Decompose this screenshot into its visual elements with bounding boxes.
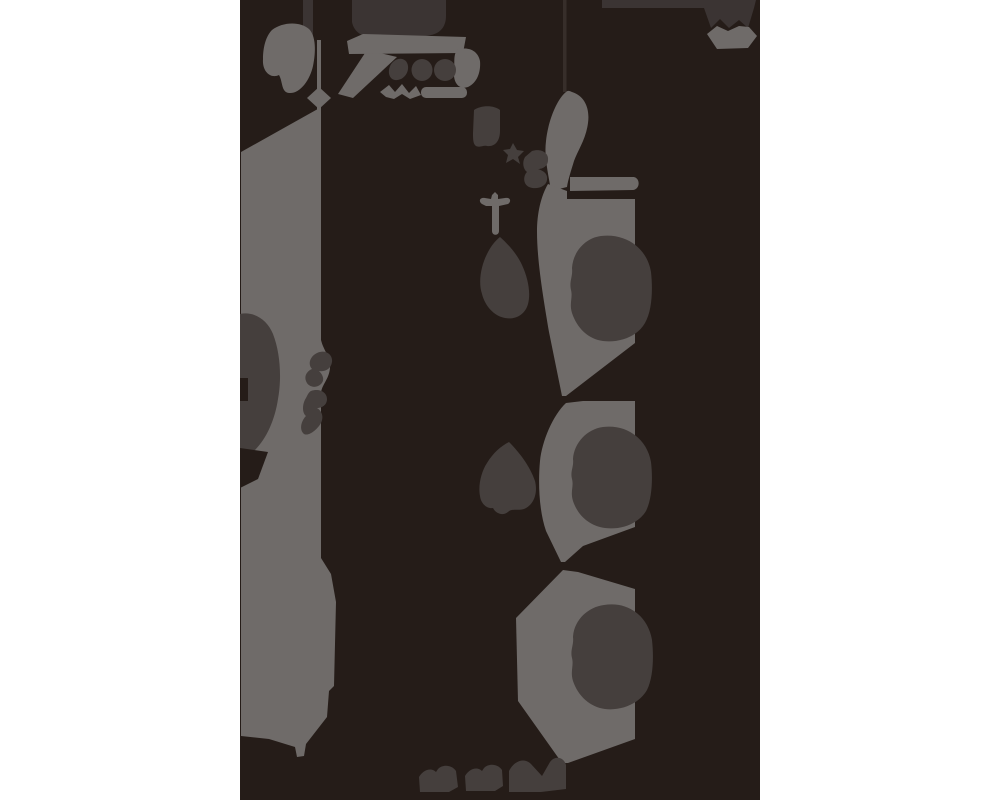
column-dark-sliver: [240, 378, 248, 401]
inner-oval-3: [571, 604, 653, 709]
small-rounded-bar: [421, 87, 467, 98]
square-blob: [473, 106, 500, 146]
faint-vertical-line: [563, 0, 567, 92]
inner-oval-2: [571, 427, 652, 529]
top-block: [352, 0, 446, 38]
posterized-figure: [0, 0, 1000, 800]
horizontal-shelf-bar: [570, 177, 639, 191]
round-glyph-2: [412, 59, 433, 81]
canvas: [0, 0, 1000, 800]
inner-oval-1: [570, 236, 651, 342]
round-glyph-3: [434, 59, 456, 81]
top-light-band: [347, 34, 466, 54]
